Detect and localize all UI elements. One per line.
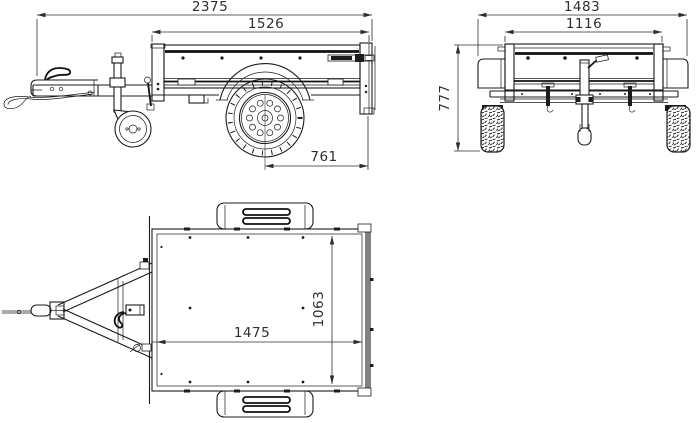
floor-bolts	[160, 236, 304, 383]
jockey-clamp-top	[115, 305, 144, 328]
box-body-top	[152, 228, 368, 393]
front-post	[152, 44, 164, 101]
jockey-wheel-front	[576, 55, 608, 145]
dim-inner-length: 1475	[152, 325, 362, 344]
coupling-lever	[45, 68, 70, 80]
road-wheel-side	[226, 79, 304, 170]
left-corner-post	[505, 44, 514, 101]
right-corner-post	[654, 44, 663, 101]
dim-box-length: 1526	[152, 16, 369, 42]
tailgate-top	[358, 224, 374, 396]
coupling-hitch	[31, 68, 98, 96]
front-latch-lever	[145, 77, 155, 110]
reflector-rear	[328, 79, 343, 85]
crossmember	[118, 279, 123, 342]
tailgate-latch-bar	[328, 54, 374, 62]
dim-axle-to-rear: 761	[265, 116, 368, 170]
dim-body-width: 1116	[505, 16, 662, 42]
reflector-front	[178, 79, 195, 85]
safety-cable-top	[2, 310, 31, 313]
dim-inner-width: 1063	[311, 236, 334, 384]
drawing-canvas: 2375 1526 761	[0, 0, 700, 423]
chassis-bracket	[189, 95, 204, 103]
dim-label-inner-length: 1475	[234, 325, 270, 341]
arm-attachment-upper	[140, 258, 149, 269]
arm-attachment-lower	[130, 344, 151, 352]
fender-front-right	[663, 59, 688, 111]
jockey-crank-handle	[596, 55, 609, 62]
safety-cable	[4, 91, 95, 109]
jockey-tire	[115, 111, 151, 147]
jockey-wheel-side	[110, 53, 151, 147]
road-wheel-front-left	[481, 106, 504, 152]
fender-front-left	[478, 59, 505, 111]
trailer-drawing: 2375 1526 761	[0, 0, 700, 423]
fender-top-upper	[217, 203, 313, 229]
dim-label-overall-length: 2375	[192, 0, 228, 15]
dim-label-overall-height: 777	[437, 84, 453, 111]
top-view: 1475 1063	[2, 203, 374, 417]
dim-label-axle-to-rear: 761	[310, 149, 337, 165]
fender-top-lower	[217, 391, 313, 417]
dim-overall-length: 2375	[37, 0, 372, 76]
road-wheel-front-right	[667, 106, 690, 152]
dim-label-overall-width: 1483	[564, 0, 600, 15]
drawbar-top	[2, 258, 152, 358]
side-view: 2375 1526 761	[4, 0, 375, 170]
front-view: 1483 1116 777	[437, 0, 690, 152]
dim-label-box-length: 1526	[248, 16, 284, 32]
dim-label-inner-width: 1063	[311, 291, 327, 327]
dim-label-body-width: 1116	[566, 16, 602, 32]
